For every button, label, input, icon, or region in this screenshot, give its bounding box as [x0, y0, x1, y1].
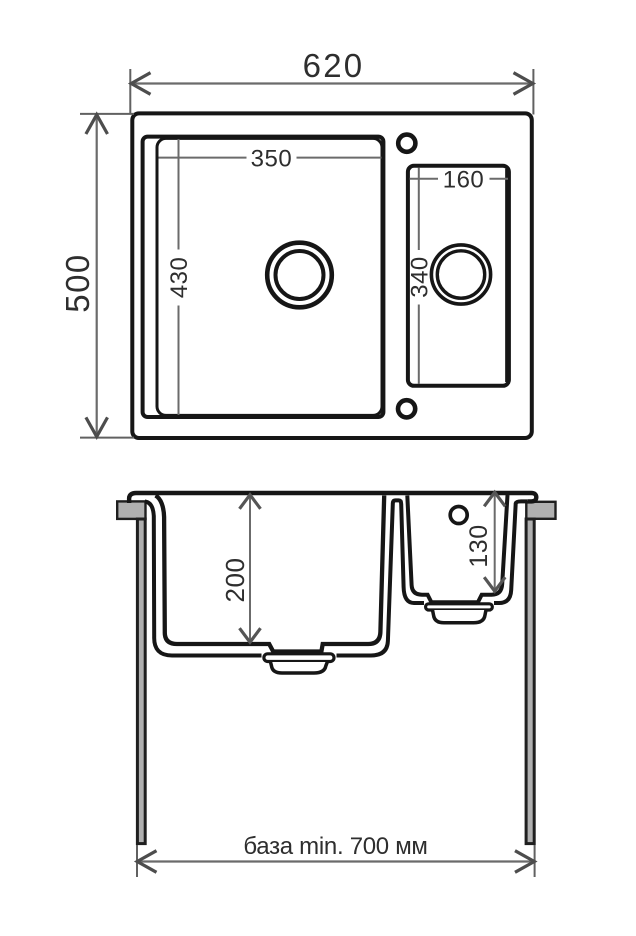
svg-text:130: 130: [465, 524, 493, 567]
svg-text:350: 350: [251, 145, 293, 172]
svg-text:500: 500: [59, 253, 96, 313]
svg-text:200: 200: [220, 558, 250, 603]
svg-text:160: 160: [443, 167, 485, 194]
svg-text:база min. 700 мм: база min. 700 мм: [243, 833, 427, 860]
svg-text:430: 430: [166, 257, 193, 299]
svg-text:340: 340: [407, 256, 434, 298]
svg-text:620: 620: [303, 47, 365, 84]
